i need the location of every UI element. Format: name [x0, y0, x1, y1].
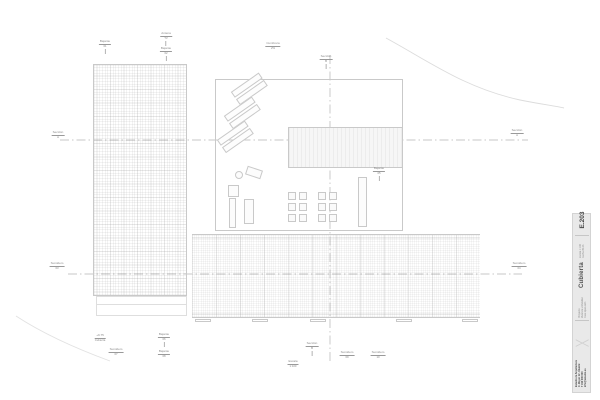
annotation-sub: 05: [373, 172, 385, 175]
annotation-sub: 03: [50, 267, 65, 270]
annotation-sumidero: Sumidero10: [371, 351, 386, 360]
annotation-bajante: Bajante01: [99, 40, 111, 54]
annotation-sub: B: [306, 347, 319, 350]
annotation-sub: TV: [160, 37, 172, 40]
annotation-sumidero: Sumidero04: [512, 262, 527, 271]
firm-info: Estudio de Arquitectura C. Mayor 12 · Ma…: [576, 351, 588, 387]
annotation-sumidero: Sumidero07: [109, 348, 124, 357]
title-block-divider: [575, 320, 589, 321]
annotation-bajante: Bajante08: [158, 350, 170, 359]
annotation-sub: 06: [158, 338, 170, 341]
project-fields: Proyecto Vivienda unifamiliar Fase Ejecu…: [578, 288, 587, 318]
annotation-+9.75: +9.75Cubierta: [95, 334, 106, 343]
annotation-secci-n: SecciónB: [320, 55, 333, 69]
annotation-escala: Escala1:100: [287, 360, 298, 369]
annotation-bajante: Bajante02: [160, 47, 172, 61]
annotation-sub: B: [320, 60, 333, 63]
annotation-antena: AntenaTV: [160, 32, 172, 46]
annotation-sub: A: [511, 134, 524, 137]
annotations-layer: Bajante01AntenaTVBajante02Cumbrera2%Secc…: [0, 0, 600, 400]
annotation-sub: 1:100: [287, 365, 298, 368]
title-block-divider: [575, 235, 589, 236]
annotation-cumbrera: Cumbrera2%: [265, 42, 280, 51]
annotation-sumidero: Sumidero03: [50, 262, 65, 271]
annotation-sub: 02: [160, 52, 172, 55]
title-block-content: Estudio de Arquitectura C. Mayor 12 · Ma…: [573, 214, 591, 393]
annotation-sub: 01: [99, 45, 111, 48]
title-block: Estudio de Arquitectura C. Mayor 12 · Ma…: [572, 213, 591, 393]
annotation-sub: 04: [512, 267, 527, 270]
sheet-code: E.203: [579, 207, 586, 233]
annotation-sub: 10: [371, 356, 386, 359]
annotation-secci-n: SecciónB: [306, 342, 319, 356]
drawing-sheet: Bajante01AntenaTVBajante02Cumbrera2%Secc…: [0, 0, 600, 400]
annotation-sub: 2%: [265, 47, 280, 50]
annotation-secci-n: SecciónA: [511, 129, 524, 138]
annotation-sub: 09: [340, 356, 355, 359]
annotation-bajante: Bajante05: [373, 167, 385, 181]
annotation-sub: Cubierta: [95, 339, 106, 342]
meta-fields: Escala 1:100 Fecha 05.23: [579, 238, 585, 258]
annotation-sub: A: [52, 136, 65, 139]
firm-logo-icon: ╳: [576, 335, 589, 351]
annotation-bajante: Bajante06: [158, 333, 170, 347]
annotation-sub: 08: [158, 355, 170, 358]
annotation-secci-n: SecciónA: [52, 131, 65, 140]
annotation-sub: 07: [109, 353, 124, 356]
drawing-title: Cubierta: [579, 258, 585, 288]
annotation-sumidero: Sumidero09: [340, 351, 355, 360]
